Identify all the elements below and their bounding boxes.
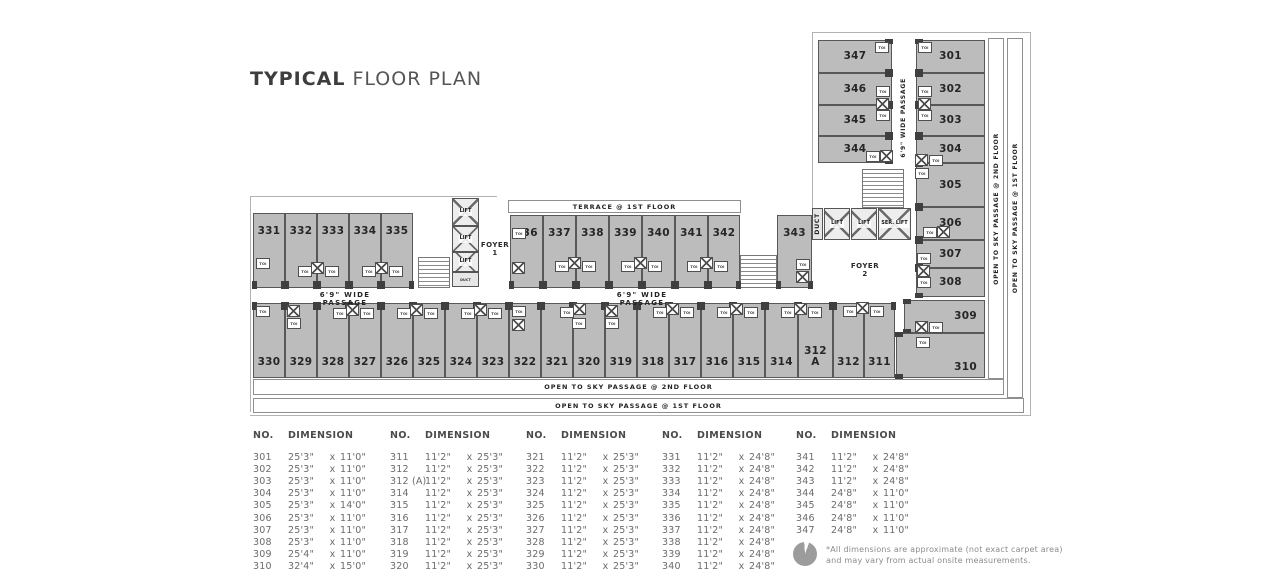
cell-no: 341 (796, 452, 831, 463)
wide-passage-label-left: 6'9" WIDE PASSAGE (300, 291, 390, 307)
service-lift-label: SER. LIFT (880, 220, 908, 228)
cell-no: 347 (796, 525, 831, 536)
toilet-icon: TOI (918, 86, 932, 97)
room-number: 344 (844, 144, 867, 155)
cell-sep: x (462, 464, 477, 475)
cell-sep: x (462, 488, 477, 499)
lift-label: LIFT (857, 220, 871, 228)
table-header: NO.DIMENSION (390, 430, 503, 441)
toilet-icon: TOI (621, 261, 635, 272)
cell-no: 305 (253, 500, 288, 511)
cell-sep: x (868, 488, 883, 499)
room-number: 327 (354, 357, 377, 368)
room-number: 303 (939, 115, 962, 126)
dimension-row: 30725'3"x11'0" (253, 524, 366, 536)
cell-h: 24'8" (749, 476, 775, 487)
cell-w: 25'3" (288, 525, 325, 536)
toilet-icon: TOI (917, 253, 931, 264)
dimension-row: 34424'8"x11'0" (796, 488, 909, 500)
floor-plan: TERRACE @ 1ST FLOOR OPEN TO SKY PASSAGE … (0, 0, 1280, 425)
dimension-row: 312 (A)11'2"x25'3" (390, 475, 503, 487)
cell-h: 25'3" (477, 549, 503, 560)
room-number: 337 (548, 228, 571, 239)
cell-w: 24'8" (831, 525, 868, 536)
cell-w: 25'3" (288, 452, 325, 463)
cell-no: 308 (253, 537, 288, 548)
dimension-row: 31811'2"x25'3" (390, 536, 503, 548)
cell-h: 25'3" (477, 464, 503, 475)
dimension-row: 30425'3"x11'0" (253, 488, 366, 500)
cell-w: 11'2" (697, 549, 734, 560)
shaft-icon (856, 302, 869, 314)
cell-sep: x (462, 476, 477, 487)
dimension-row: 33511'2"x24'8" (662, 500, 775, 512)
shaft-icon (876, 98, 889, 110)
room-number: 307 (939, 249, 962, 260)
toilet-icon: TOI (582, 261, 596, 272)
cell-no: 338 (662, 537, 697, 548)
cell-w: 11'2" (561, 513, 598, 524)
sky-passage-2nd-vertical-label: OPEN TO SKY PASSAGE @ 2ND FLOOR (993, 133, 1000, 285)
cell-sep: x (598, 488, 613, 499)
lift-label: LIFT (459, 208, 473, 216)
room-number: 317 (674, 357, 697, 368)
cell-h: 25'3" (477, 513, 503, 524)
cell-h: 11'0" (883, 513, 909, 524)
cell-sep: x (325, 513, 340, 524)
toilet-icon: TOI (808, 307, 822, 318)
room-number: 339 (614, 228, 637, 239)
cell-h: 24'8" (749, 464, 775, 475)
room-number: 347 (844, 51, 867, 62)
cell-no: 306 (253, 513, 288, 524)
cell-h: 24'8" (749, 500, 775, 511)
table-header: NO.DIMENSION (526, 430, 639, 441)
dimension-row: 34624'8"x11'0" (796, 512, 909, 524)
toilet-icon: TOI (917, 277, 931, 288)
cell-w: 24'8" (831, 513, 868, 524)
cell-h: 11'0" (340, 549, 366, 560)
dimension-row: 32011'2"x25'3" (390, 561, 503, 573)
cell-h: 11'0" (883, 500, 909, 511)
shaft-icon (512, 262, 525, 274)
cell-no: 307 (253, 525, 288, 536)
cell-w: 11'2" (697, 452, 734, 463)
toilet-icon: TOI (389, 266, 403, 277)
toilet-icon: TOI (560, 307, 574, 318)
cell-sep: x (868, 513, 883, 524)
dimension-row: 30825'3"x11'0" (253, 536, 366, 548)
sky-passage-strip-2nd: OPEN TO SKY PASSAGE @ 2ND FLOOR (253, 379, 1004, 395)
toilet-icon: TOI (796, 259, 810, 270)
dimension-row: 34524'8"x11'0" (796, 500, 909, 512)
cell-h: 11'0" (340, 488, 366, 499)
cell-sep: x (325, 476, 340, 487)
footnote-line-2: and may vary from actual onsite measurem… (826, 555, 1063, 566)
dimensions-footnote: *All dimensions are approximate (not exa… (826, 544, 1063, 566)
room-number: 340 (647, 228, 670, 239)
cell-no: 333 (662, 476, 697, 487)
cell-w: 11'2" (697, 561, 734, 572)
cell-no: 317 (390, 525, 425, 536)
room-number: 302 (939, 84, 962, 95)
cell-no: 329 (526, 549, 561, 560)
cell-sep: x (868, 464, 883, 475)
cell-w: 11'2" (561, 488, 598, 499)
dimension-row: 31611'2"x25'3" (390, 512, 503, 524)
shaft-icon (918, 98, 931, 110)
cell-h: 25'3" (613, 525, 639, 536)
toilet-icon: TOI (714, 261, 728, 272)
room-number: 329 (290, 357, 313, 368)
toilet-icon: TOI (333, 308, 347, 319)
cell-h: 25'3" (613, 452, 639, 463)
table-column: NO.DIMENSION 32111'2"x25'3"32211'2"x25'3… (526, 430, 639, 573)
cell-w: 32'4" (288, 561, 325, 572)
cell-no: 332 (662, 464, 697, 475)
cell-w: 11'2" (425, 537, 462, 548)
dimension-row: 32111'2"x25'3" (526, 451, 639, 463)
cell-no: 314 (390, 488, 425, 499)
duct-box: DUCT (452, 272, 479, 287)
shaft-icon (794, 303, 807, 315)
shaft-icon (917, 265, 930, 277)
cell-w: 11'2" (561, 549, 598, 560)
dimension-row: 33711'2"x24'8" (662, 524, 775, 536)
cell-sep: x (868, 452, 883, 463)
cell-sep: x (598, 452, 613, 463)
room-number: 320 (578, 357, 601, 368)
shaft-icon (568, 257, 581, 269)
no-header: NO. (253, 430, 288, 441)
shaft-icon (796, 271, 809, 283)
cell-no: 304 (253, 488, 288, 499)
dimension-row: 31411'2"x25'3" (390, 488, 503, 500)
cell-w: 11'2" (425, 525, 462, 536)
cell-h: 25'3" (613, 476, 639, 487)
cell-sep: x (734, 525, 749, 536)
cell-h: 11'0" (340, 525, 366, 536)
cell-sep: x (868, 500, 883, 511)
table-column: NO.DIMENSION 30125'3"x11'0"30225'3"x11'0… (253, 430, 366, 573)
room-310: 310 (896, 333, 985, 378)
cell-no: 311 (390, 452, 425, 463)
dimension-row: 34011'2"x24'8" (662, 561, 775, 573)
cell-w: 11'2" (425, 513, 462, 524)
no-header: NO. (796, 430, 831, 441)
sky-passage-2nd-label: OPEN TO SKY PASSAGE @ 2ND FLOOR (544, 383, 712, 391)
footnote-line-1: *All dimensions are approximate (not exa… (826, 544, 1063, 555)
terrace-label: TERRACE @ 1ST FLOOR (573, 203, 676, 211)
cell-h: 25'3" (477, 488, 503, 499)
toilet-icon: TOI (512, 228, 526, 239)
duct-label: DUCT (460, 278, 471, 282)
toilet-icon: TOI (870, 306, 884, 317)
room-number: 308 (939, 277, 962, 288)
cell-no: 328 (526, 537, 561, 548)
toilet-icon: TOI (918, 42, 932, 53)
toilet-icon: TOI (915, 168, 929, 179)
toilet-icon: TOI (916, 337, 930, 348)
cell-sep: x (734, 464, 749, 475)
cell-w: 11'2" (697, 513, 734, 524)
cell-w: 11'2" (697, 537, 734, 548)
room-number: 343 (783, 228, 806, 239)
cell-h: 11'0" (883, 488, 909, 499)
toilet-icon: TOI (488, 308, 502, 319)
cell-no: 330 (526, 561, 561, 572)
dimension-row: 33011'2"x25'3" (526, 561, 639, 573)
cell-no: 339 (662, 549, 697, 560)
dimension-row: 31711'2"x25'3" (390, 524, 503, 536)
cell-sep: x (462, 561, 477, 572)
cell-no: 324 (526, 488, 561, 499)
room-number: 342 (713, 228, 736, 239)
foyer-1-label: FOYER 1 (478, 241, 512, 257)
cell-sep: x (462, 452, 477, 463)
room-339: 339 (609, 215, 642, 288)
cell-no: 302 (253, 464, 288, 475)
table-column: NO.DIMENSION 34111'2"x24'8"34211'2"x24'8… (796, 430, 909, 536)
shaft-icon (915, 321, 928, 333)
dimension-header: DIMENSION (561, 430, 626, 441)
cell-no: 320 (390, 561, 425, 572)
cell-no: 321 (526, 452, 561, 463)
cell-h: 24'8" (883, 452, 909, 463)
cell-h: 24'8" (749, 452, 775, 463)
cell-w: 25'3" (288, 513, 325, 524)
shaft-icon (287, 305, 300, 317)
dimension-row: 32411'2"x25'3" (526, 488, 639, 500)
room-number: 338 (581, 228, 604, 239)
dimension-row: 33211'2"x24'8" (662, 463, 775, 475)
pie-icon (793, 542, 817, 566)
cell-w: 11'2" (425, 549, 462, 560)
cell-w: 25'3" (288, 464, 325, 475)
room-number: 312 (837, 357, 860, 368)
cell-w: 11'2" (561, 476, 598, 487)
cell-no: 315 (390, 500, 425, 511)
cell-w: 11'2" (697, 500, 734, 511)
wide-passage-label-vertical: 6'9" WIDE PASSAGE (894, 48, 912, 188)
dimension-row: 31111'2"x25'3" (390, 451, 503, 463)
room-number: 321 (546, 357, 569, 368)
room-number: 301 (939, 51, 962, 62)
room-number: 315 (738, 357, 761, 368)
shaft-icon (573, 303, 586, 315)
cell-h: 24'8" (749, 561, 775, 572)
cell-no: 318 (390, 537, 425, 548)
cell-sep: x (734, 537, 749, 548)
cell-no: 343 (796, 476, 831, 487)
cell-sep: x (462, 549, 477, 560)
room-number: 311 (868, 357, 891, 368)
cell-sep: x (598, 549, 613, 560)
room-337: 337 (543, 215, 576, 288)
cell-w: 11'2" (425, 561, 462, 572)
sky-passage-1st-label: OPEN TO SKY PASSAGE @ 1ST FLOOR (555, 402, 722, 410)
cell-sep: x (598, 476, 613, 487)
cell-no: 316 (390, 513, 425, 524)
cell-no: 344 (796, 488, 831, 499)
cell-sep: x (734, 513, 749, 524)
cell-w: 11'2" (697, 525, 734, 536)
table-column: NO.DIMENSION 33111'2"x24'8"33211'2"x24'8… (662, 430, 775, 573)
cell-w: 11'2" (561, 452, 598, 463)
sky-passage-1st-vertical-label: OPEN TO SKY PASSAGE @ 1ST FLOOR (1012, 143, 1019, 293)
cell-h: 25'3" (613, 561, 639, 572)
cell-h: 25'3" (613, 464, 639, 475)
dimension-row: 31911'2"x25'3" (390, 549, 503, 561)
cell-sep: x (734, 452, 749, 463)
cell-h: 24'8" (749, 537, 775, 548)
cell-sep: x (734, 561, 749, 572)
lift-box: LIFT (452, 226, 479, 252)
cell-h: 11'0" (340, 513, 366, 524)
room-number: 323 (482, 357, 505, 368)
cell-w: 11'2" (561, 500, 598, 511)
cell-w: 25'3" (288, 500, 325, 511)
cell-sep: x (598, 464, 613, 475)
room-number: 346 (844, 84, 867, 95)
dimension-row: 32511'2"x25'3" (526, 500, 639, 512)
toilet-icon: TOI (843, 306, 857, 317)
cell-w: 11'2" (697, 488, 734, 499)
dimension-header: DIMENSION (288, 430, 353, 441)
shaft-icon (512, 319, 525, 331)
lift-box: LIFT (452, 252, 479, 272)
cell-no: 301 (253, 452, 288, 463)
cell-no: 346 (796, 513, 831, 524)
outline (250, 415, 1031, 416)
cell-w: 11'2" (425, 476, 462, 487)
dimension-row: 34311'2"x24'8" (796, 475, 909, 487)
cell-sep: x (462, 500, 477, 511)
dimension-row: 33311'2"x24'8" (662, 475, 775, 487)
room-number: 318 (642, 357, 665, 368)
cell-no: 312 (A) (390, 476, 425, 487)
dimension-header: DIMENSION (831, 430, 896, 441)
dimension-row: 32711'2"x25'3" (526, 524, 639, 536)
lift-box: LIFT (851, 208, 877, 240)
wide-passage-vertical-text: 6'9" WIDE PASSAGE (900, 78, 907, 158)
cell-sep: x (325, 561, 340, 572)
cell-h: 11'0" (340, 452, 366, 463)
cell-no: 319 (390, 549, 425, 560)
room-number: 330 (258, 357, 281, 368)
dimension-row: 32311'2"x25'3" (526, 475, 639, 487)
cell-sep: x (325, 537, 340, 548)
room-number: 305 (939, 180, 962, 191)
toilet-icon: TOI (325, 266, 339, 277)
room-number: 310 (954, 362, 977, 373)
cell-sep: x (325, 500, 340, 511)
dimension-row: 34211'2"x24'8" (796, 463, 909, 475)
no-header: NO. (526, 430, 561, 441)
lift-label: LIFT (459, 235, 473, 243)
cell-w: 11'2" (425, 452, 462, 463)
cell-sep: x (598, 561, 613, 572)
toilet-icon: TOI (687, 261, 701, 272)
cell-no: 335 (662, 500, 697, 511)
room-331: 331 (253, 213, 285, 288)
dimension-row: 34724'8"x11'0" (796, 524, 909, 536)
room-number: 314 (770, 357, 793, 368)
room-number: 312 A (799, 346, 832, 367)
cell-h: 24'8" (749, 549, 775, 560)
toilet-icon: TOI (572, 318, 586, 329)
cell-sep: x (734, 500, 749, 511)
cell-no: 334 (662, 488, 697, 499)
dimension-row: 30625'3"x11'0" (253, 512, 366, 524)
room-number: 328 (322, 357, 345, 368)
room-number: 341 (680, 228, 703, 239)
cell-sep: x (734, 549, 749, 560)
room-number: 324 (450, 357, 473, 368)
cell-w: 11'2" (831, 476, 868, 487)
cell-no: 310 (253, 561, 288, 572)
room-number: 309 (954, 311, 977, 322)
room-341: 341 (675, 215, 708, 288)
toilet-icon: TOI (929, 322, 943, 333)
table-header: NO.DIMENSION (253, 430, 366, 441)
toilet-icon: TOI (298, 266, 312, 277)
toilet-icon: TOI (717, 307, 731, 318)
sky-passage-strip-2nd-vertical: OPEN TO SKY PASSAGE @ 2ND FLOOR (988, 38, 1004, 379)
cell-h: 25'3" (477, 561, 503, 572)
cell-sep: x (462, 537, 477, 548)
dimension-row: 34111'2"x24'8" (796, 451, 909, 463)
room-340: 340 (642, 215, 675, 288)
cell-w: 25'4" (288, 549, 325, 560)
table-column: NO.DIMENSION 31111'2"x25'3"31211'2"x25'3… (390, 430, 503, 573)
room-338: 338 (576, 215, 609, 288)
cell-sep: x (598, 500, 613, 511)
cell-h: 14'0" (340, 500, 366, 511)
room-number: 331 (258, 226, 281, 237)
room-number: 325 (418, 357, 441, 368)
cell-no: 312 (390, 464, 425, 475)
cell-sep: x (325, 464, 340, 475)
dimension-row: 33111'2"x24'8" (662, 451, 775, 463)
toilet-icon: TOI (866, 151, 880, 162)
cell-h: 24'8" (883, 476, 909, 487)
cell-sep: x (325, 549, 340, 560)
cell-no: 336 (662, 513, 697, 524)
toilet-icon: TOI (461, 308, 475, 319)
wide-passage-label-right: 6'9" WIDE PASSAGE (597, 291, 687, 307)
shaft-icon (311, 262, 324, 274)
shaft-icon (915, 154, 928, 166)
cell-sep: x (325, 452, 340, 463)
dimension-header: DIMENSION (425, 430, 490, 441)
cell-h: 25'3" (613, 513, 639, 524)
toilet-icon: TOI (256, 258, 270, 269)
lift-label: LIFT (459, 258, 473, 266)
staircase (740, 255, 777, 288)
toilet-icon: TOI (287, 318, 301, 329)
cell-w: 25'3" (288, 537, 325, 548)
cell-h: 25'3" (613, 537, 639, 548)
toilet-icon: TOI (918, 110, 932, 121)
cell-h: 24'8" (749, 525, 775, 536)
floor-plan-page: TYPICALFLOOR PLAN TERRACE @ 1ST FLOOR OP… (0, 0, 1280, 579)
toilet-icon: TOI (362, 266, 376, 277)
dimension-row: 31511'2"x25'3" (390, 500, 503, 512)
table-header: NO.DIMENSION (662, 430, 775, 441)
cell-w: 11'2" (561, 464, 598, 475)
room-number: 332 (290, 226, 313, 237)
